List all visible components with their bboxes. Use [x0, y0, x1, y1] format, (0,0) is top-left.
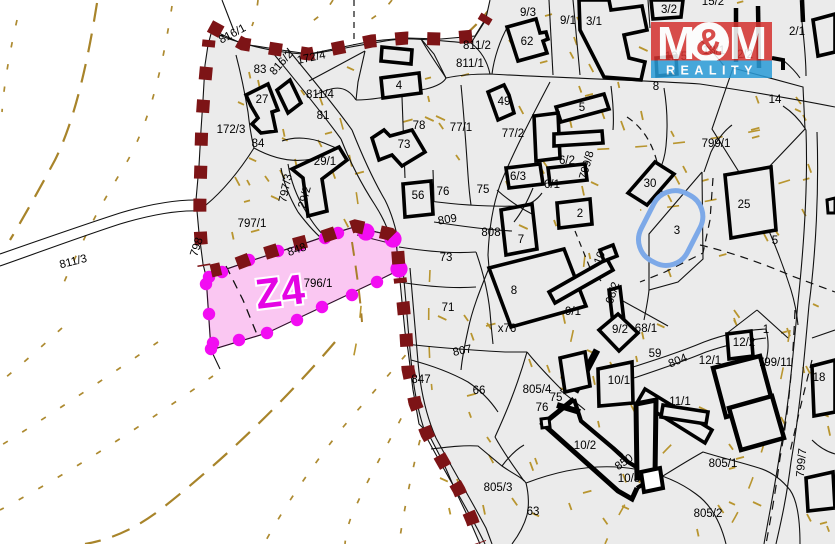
svg-text:Z4: Z4	[253, 265, 308, 318]
svg-text:6/3: 6/3	[510, 171, 526, 183]
svg-text:2: 2	[577, 208, 583, 220]
svg-text:66: 66	[473, 385, 486, 397]
svg-text:15/2: 15/2	[702, 0, 724, 8]
svg-text:49: 49	[498, 96, 511, 108]
svg-text:83: 83	[254, 64, 267, 76]
svg-text:9/1: 9/1	[565, 306, 581, 318]
svg-text:73: 73	[440, 252, 453, 264]
svg-text:3/1: 3/1	[586, 16, 602, 28]
svg-text:10/8: 10/8	[618, 473, 640, 485]
svg-text:75: 75	[477, 184, 490, 196]
svg-text:805/3: 805/3	[484, 482, 513, 494]
svg-text:9/1: 9/1	[560, 15, 576, 27]
svg-text:62: 62	[521, 36, 534, 48]
svg-text:9/2: 9/2	[612, 324, 628, 336]
svg-text:805/4: 805/4	[523, 384, 552, 396]
svg-text:27: 27	[256, 94, 269, 106]
svg-text:29/1: 29/1	[314, 156, 336, 168]
svg-text:25: 25	[738, 199, 751, 211]
svg-text:x76: x76	[498, 323, 517, 335]
svg-text:2/1: 2/1	[789, 26, 805, 38]
svg-text:75: 75	[550, 392, 563, 404]
svg-text:799/7: 799/7	[795, 448, 809, 478]
svg-text:5: 5	[579, 102, 585, 114]
svg-text:805/2: 805/2	[694, 508, 723, 520]
svg-text:7: 7	[518, 234, 524, 246]
svg-text:172/3: 172/3	[217, 124, 246, 136]
svg-text:&: &	[696, 22, 723, 63]
svg-text:30: 30	[644, 178, 657, 190]
svg-text:3/2: 3/2	[661, 4, 677, 16]
svg-text:5: 5	[772, 235, 778, 247]
svg-text:59: 59	[649, 348, 662, 360]
svg-text:76: 76	[536, 402, 549, 414]
svg-text:797/1: 797/1	[238, 218, 267, 230]
svg-text:6/2: 6/2	[559, 155, 575, 167]
svg-text:77/1: 77/1	[450, 122, 472, 134]
svg-text:68/1: 68/1	[635, 323, 657, 335]
svg-text:799/11: 799/11	[758, 357, 792, 369]
svg-text:REALITY: REALITY	[666, 64, 758, 78]
svg-text:11/1: 11/1	[669, 396, 691, 408]
svg-text:71: 71	[442, 302, 455, 314]
svg-text:796/1: 796/1	[304, 278, 333, 290]
svg-text:73: 73	[398, 139, 411, 151]
svg-text:811/1: 811/1	[456, 58, 484, 70]
svg-text:12/1: 12/1	[699, 355, 721, 367]
svg-text:10/1: 10/1	[608, 375, 630, 387]
svg-text:6/1: 6/1	[544, 179, 560, 191]
svg-text:1: 1	[763, 324, 769, 336]
svg-text:847: 847	[411, 374, 430, 386]
svg-text:18: 18	[813, 372, 826, 384]
svg-text:63: 63	[527, 506, 540, 518]
svg-text:9/3: 9/3	[520, 7, 536, 19]
svg-text:4: 4	[396, 80, 403, 92]
svg-text:81: 81	[317, 110, 330, 122]
svg-text:811/4: 811/4	[306, 89, 335, 101]
svg-text:3: 3	[674, 225, 680, 237]
svg-text:805/1: 805/1	[709, 458, 738, 470]
svg-text:14: 14	[769, 94, 782, 106]
svg-text:808: 808	[481, 227, 500, 239]
svg-text:8: 8	[511, 285, 517, 297]
svg-text:84: 84	[252, 138, 265, 150]
svg-text:78: 78	[413, 120, 426, 132]
svg-text:12/2: 12/2	[733, 337, 755, 349]
svg-text:10/2: 10/2	[574, 440, 596, 452]
svg-text:8: 8	[653, 81, 659, 93]
svg-text:799/1: 799/1	[702, 138, 731, 150]
svg-text:56: 56	[412, 190, 425, 202]
svg-text:76: 76	[437, 186, 450, 198]
svg-text:811/2: 811/2	[463, 40, 491, 52]
svg-text:77/2: 77/2	[502, 128, 524, 140]
